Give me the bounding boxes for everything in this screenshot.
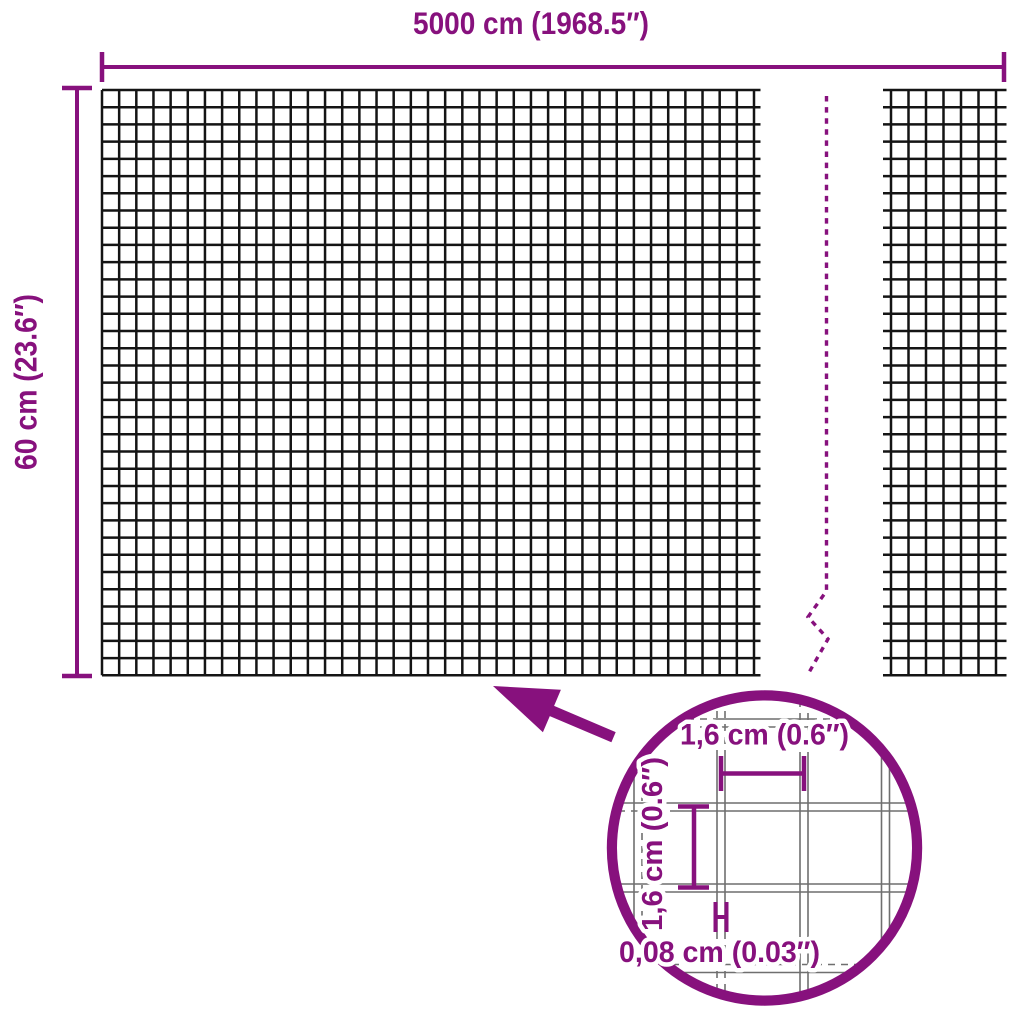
svg-text:60 cm (23.6″): 60 cm (23.6″) xyxy=(8,294,44,470)
svg-text:1,6 cm (0.6″): 1,6 cm (0.6″) xyxy=(680,719,849,752)
svg-text:5000 cm (1968.5″): 5000 cm (1968.5″) xyxy=(413,5,649,41)
svg-text:1,6 cm (0.6″): 1,6 cm (0.6″) xyxy=(637,757,669,931)
svg-text:0,08 cm (0.03″): 0,08 cm (0.03″) xyxy=(619,936,820,969)
